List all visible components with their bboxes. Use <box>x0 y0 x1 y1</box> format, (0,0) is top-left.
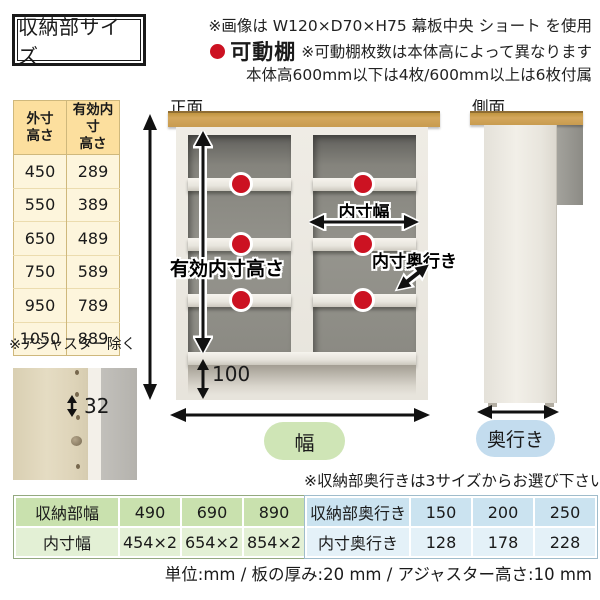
red-dot-icon <box>210 44 225 59</box>
inner-depth-value: 128 <box>411 528 471 556</box>
outer-height-value: 950 <box>14 289 67 323</box>
width-table-label: 収納部幅 <box>16 498 118 526</box>
inner-height-value: 289 <box>67 155 120 189</box>
table-row: 450289 <box>14 155 120 189</box>
table-row: 内寸奥行き 128 178 228 <box>307 528 595 556</box>
inner-depth-value: 178 <box>473 528 533 556</box>
depth-pill: 奥行き <box>476 420 555 457</box>
depth-value: 200 <box>473 498 533 526</box>
inner-width-value: 654×2 <box>182 528 242 556</box>
pitch-arrow-icon <box>66 395 79 417</box>
movable-shelf-dot-icon <box>229 172 253 196</box>
depth-size-note: ※収納部奥行きは3サイズからお選び下さい <box>304 469 600 491</box>
inner-height-value: 789 <box>67 289 120 323</box>
height-table-header-outer: 外寸 高さ <box>14 101 67 155</box>
outer-height-value: 650 <box>14 222 67 256</box>
shelf-pitch-value: 32 <box>84 394 109 418</box>
page-title: 収納部サイズ <box>17 19 141 61</box>
table-row: 内寸幅 454×2 654×2 854×2 <box>16 528 304 556</box>
height-table-header-inner: 有効内寸 高さ <box>67 101 120 155</box>
inner-height-label: 有効内寸高さ <box>170 254 284 281</box>
plinth-height-value: 100 <box>212 362 250 386</box>
width-value: 690 <box>182 498 242 526</box>
movable-shelf-row: 可動棚 ※可動棚枚数は本体高によって異なります <box>210 36 592 66</box>
table-row: 収納部奥行き 150 200 250 <box>307 498 595 526</box>
width-pill: 幅 <box>264 422 345 460</box>
inner-depth-arrow-icon <box>391 261 435 293</box>
movable-shelf-note: ※可動棚枚数は本体高によって異なります <box>301 40 592 62</box>
side-panel <box>484 125 557 403</box>
inner-height-arrow-icon <box>193 131 213 353</box>
outer-height-value: 550 <box>14 188 67 222</box>
table-row: 550389 <box>14 188 120 222</box>
width-value: 490 <box>120 498 180 526</box>
width-value: 890 <box>244 498 304 526</box>
inner-height-value: 489 <box>67 222 120 256</box>
depth-table-label: 収納部奥行き <box>307 498 409 526</box>
height-table-header-row: 外寸 高さ 有効内寸 高さ <box>14 101 120 155</box>
movable-shelf-label: 可動棚 <box>230 36 296 66</box>
plinth-height-arrow-icon <box>195 359 211 399</box>
table-row: 収納部幅 490 690 890 <box>16 498 304 526</box>
movable-shelf-dot-icon <box>351 172 375 196</box>
pin-hole-icon <box>76 464 80 469</box>
inner-depth-value: 228 <box>535 528 595 556</box>
shelf-pin-icon <box>71 436 82 446</box>
panel-edge <box>88 368 101 480</box>
page-title-box: 収納部サイズ <box>12 14 146 66</box>
width-table-label: 内寸幅 <box>16 528 118 556</box>
cabinet-top-board <box>168 111 440 127</box>
depth-table-label: 内寸奥行き <box>307 528 409 556</box>
side-top-board <box>470 111 583 125</box>
movable-shelf-note-2: 本体高600mm以下は4枚/600mm以上は6枚付属 <box>246 63 592 85</box>
height-table: 外寸 高さ 有効内寸 高さ 450289 550389 650489 75058… <box>13 100 120 356</box>
outer-height-value: 750 <box>14 255 67 289</box>
depth-arrow-icon <box>477 404 559 420</box>
image-usage-note: ※画像は W120×D70×H75 幕板中央 ショート を使用 <box>208 14 592 36</box>
table-row: 650489 <box>14 222 120 256</box>
adjuster-note: ※アジャスター除く <box>9 333 136 354</box>
width-size-table: 収納部幅 490 690 890 内寸幅 454×2 654×2 854×2 <box>13 495 307 559</box>
depth-size-table: 収納部奥行き 150 200 250 内寸奥行き 128 178 228 <box>304 495 598 559</box>
side-apron-panel <box>555 125 583 205</box>
table-row: 750589 <box>14 255 120 289</box>
outer-height-value: 450 <box>14 155 67 189</box>
storage-size-spec-sheet: 収納部サイズ ※画像は W120×D70×H75 幕板中央 ショート を使用 可… <box>0 0 600 600</box>
inner-height-value: 389 <box>67 188 120 222</box>
table-row: 950789 <box>14 289 120 323</box>
inner-width-arrow-icon <box>309 213 419 231</box>
depth-value: 150 <box>411 498 471 526</box>
movable-shelf-dot-icon <box>229 288 253 312</box>
inner-width-value: 854×2 <box>244 528 304 556</box>
movable-shelf-dot-icon <box>229 232 253 256</box>
movable-shelf-dot-icon <box>351 288 375 312</box>
units-note: 単位:mm / 板の厚み:20 mm / アジャスター高さ:10 mm <box>165 561 592 585</box>
inner-height-value: 589 <box>67 255 120 289</box>
pin-hole-icon <box>75 370 79 375</box>
shelf-pitch-photo: 32 <box>13 368 137 480</box>
depth-value: 250 <box>535 498 595 526</box>
inner-width-value: 454×2 <box>120 528 180 556</box>
height-range-arrow-icon <box>142 114 158 400</box>
width-arrow-icon <box>170 407 430 423</box>
back-panel-closeup <box>101 368 137 480</box>
